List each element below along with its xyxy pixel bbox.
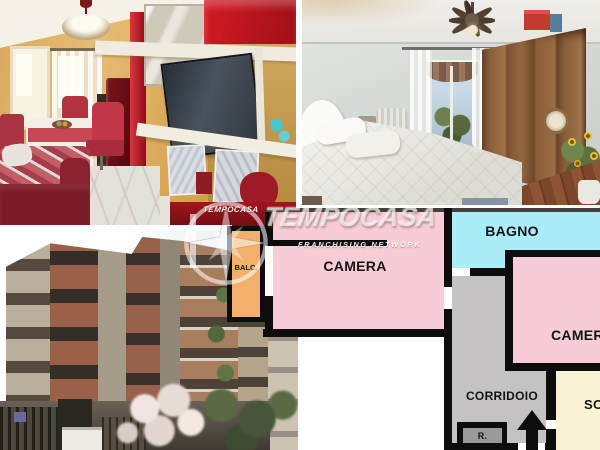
wall [505,250,600,257]
sunflower-4 [574,160,581,167]
door-opening [518,443,526,450]
lamp-canopy [80,0,92,8]
entrance-arrow-head [517,410,547,430]
sunflower-1 [568,138,576,146]
living-room-photo [0,0,298,227]
door-opening [444,287,452,309]
sunflower-2 [584,132,592,140]
watermark-logo-text: TEMPOCASA [203,205,260,214]
blue-folder [550,14,562,32]
fan-light [468,25,478,35]
foliage [196,381,298,450]
room-label-ripostiglio: R. [463,428,502,443]
wall [263,329,453,337]
divider-vertical [296,0,302,208]
red-storage-box [524,10,550,30]
fruit-bowl [52,120,72,129]
iron-gate [0,407,58,450]
listing-photo-collage: CAMERA BALC. BAGNO CAMERA CORRIDOIO SOGG… [0,0,600,450]
dining-chair-right-back [92,102,124,142]
entrance-arrow-shaft [526,428,538,450]
red-upper-cabinet [204,0,298,48]
wall [444,309,452,450]
dining-chair-right-seat [86,140,124,156]
entrance-kiosk [62,427,102,450]
ceiling-glow [302,0,442,26]
room-label-bagno: BAGNO [452,222,572,240]
room-label-soggiorno: SOGGIORNO [584,395,600,413]
wall [444,208,452,287]
red-box [196,172,212,194]
sunflower-3 [590,152,598,160]
table-leg-2 [100,154,103,170]
wall [505,363,600,371]
watermark-tagline: FRANCHISING NETWORK [298,240,421,249]
flower-pot [578,180,600,204]
room-label-camera-right: CAMERA [551,326,600,344]
room-bagno-lower [452,250,505,268]
window-left-pane [16,54,32,96]
bedroom-photo [302,0,600,207]
door-opening [546,420,556,429]
ceiling-lamp [62,14,110,40]
door-opening [538,443,545,450]
room-label-corridoio: CORRIDOIO [452,387,552,405]
wall [546,371,556,450]
room-camera-right [513,257,600,363]
room-corridoio [452,276,505,443]
street-plaque [14,412,26,422]
door-mullion [450,66,453,142]
room-label-camera-left: CAMERA [280,256,430,276]
wall [505,250,513,371]
watermark-brand-text: TEMPOCASA [262,202,439,233]
sofa-seat [0,184,90,227]
